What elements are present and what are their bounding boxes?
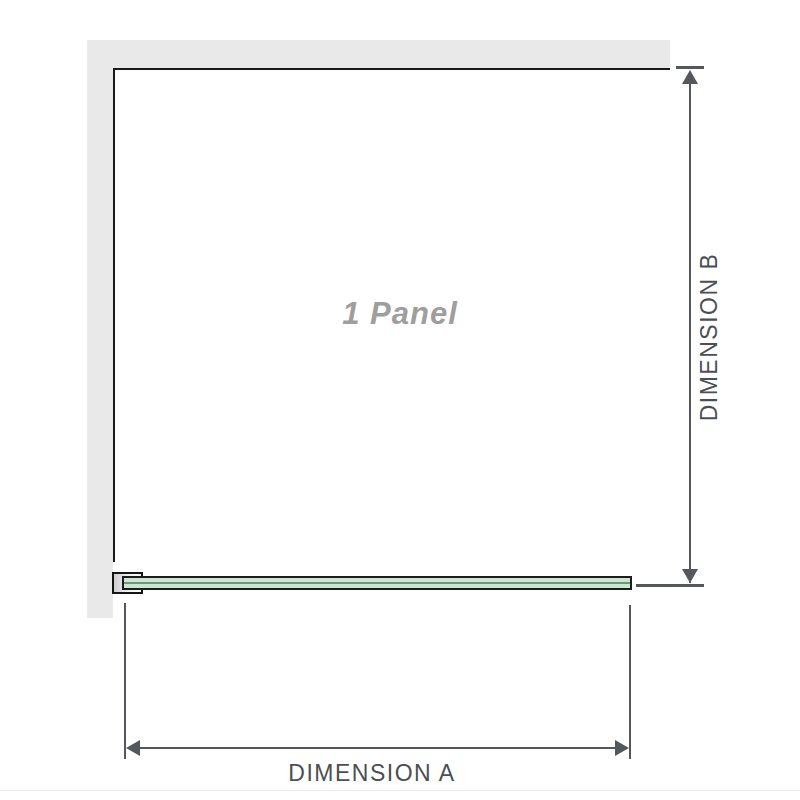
panel-count-label: 1 Panel	[270, 296, 530, 336]
glass-core-line	[124, 582, 630, 584]
arrow-down-icon	[682, 569, 698, 583]
dimension-b-bottom-tick	[636, 584, 704, 587]
glass-panel-bar	[122, 576, 632, 590]
arrow-left-icon	[126, 740, 140, 756]
arrow-right-icon	[615, 740, 629, 756]
dimension-b-label: DIMENSION B	[696, 177, 722, 497]
dimension-a-left-extension	[124, 603, 126, 759]
wall-left-strip	[87, 40, 113, 618]
bottom-divider	[0, 790, 800, 791]
dimension-a-right-extension	[629, 605, 631, 759]
wall-top-strip	[87, 40, 670, 69]
panel-configuration-diagram: 1 Panel DIMENSION B DIMENSION A	[0, 0, 800, 800]
dimension-b-top-tick	[676, 66, 704, 69]
dimension-a-line	[132, 747, 623, 749]
dimension-a-label: DIMENSION A	[252, 760, 492, 788]
dimension-b-line	[689, 72, 691, 583]
arrow-up-icon	[682, 70, 698, 84]
